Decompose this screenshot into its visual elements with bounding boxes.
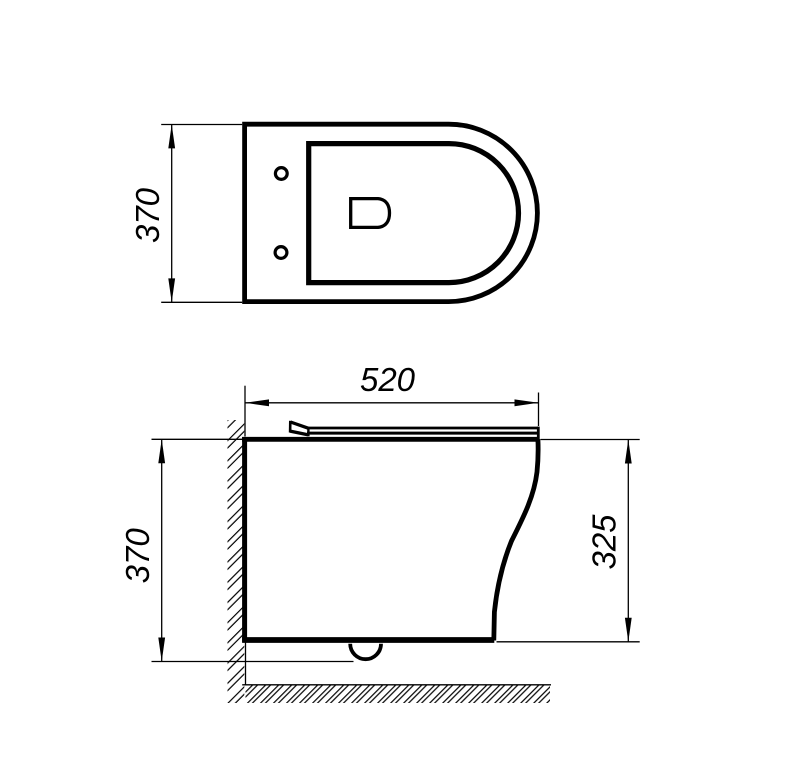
svg-text:370: 370 [129,187,166,243]
svg-text:370: 370 [119,528,156,584]
svg-text:325: 325 [586,514,623,570]
svg-text:520: 520 [360,361,416,398]
